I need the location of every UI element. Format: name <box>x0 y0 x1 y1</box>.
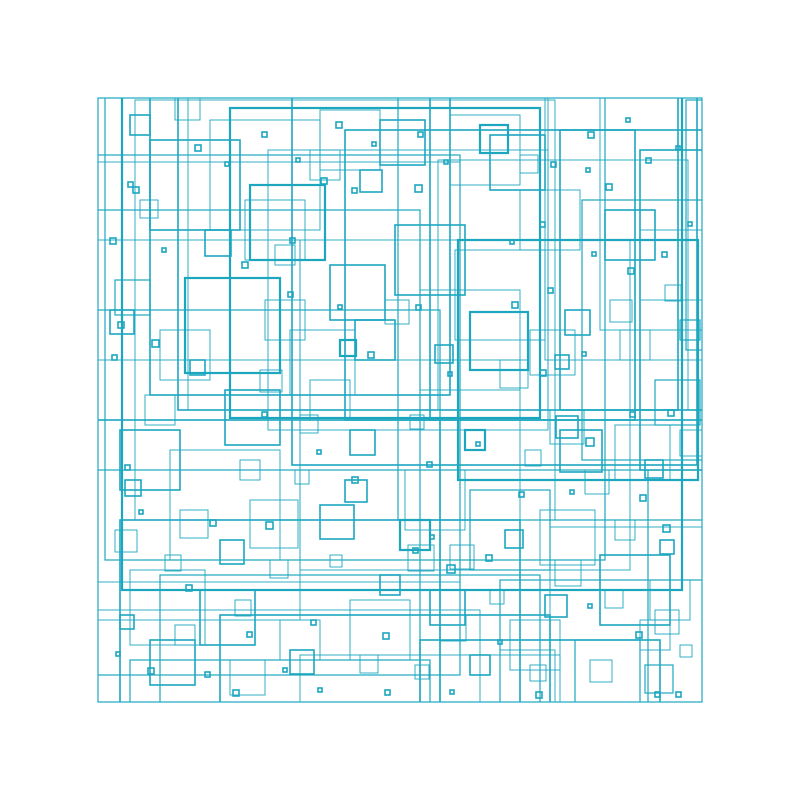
art-square <box>262 132 267 137</box>
art-square <box>450 690 454 694</box>
art-square <box>615 520 635 540</box>
art-square <box>130 115 150 135</box>
art-square <box>338 305 342 309</box>
art-square <box>110 238 116 244</box>
art-square <box>311 620 316 625</box>
art-square <box>686 100 800 350</box>
art-square <box>295 470 309 484</box>
art-square <box>400 520 430 550</box>
art-square <box>350 600 410 660</box>
art-square <box>640 150 800 470</box>
art-square <box>490 135 545 190</box>
art-square <box>360 170 382 192</box>
art-square <box>112 355 117 360</box>
art-square <box>540 222 545 227</box>
art-square <box>519 492 524 497</box>
art-square <box>510 240 514 244</box>
art-square <box>242 262 248 268</box>
art-square <box>500 650 555 705</box>
art-square <box>139 510 143 514</box>
art-square <box>490 590 504 604</box>
art-square <box>175 625 195 645</box>
art-square <box>588 604 592 608</box>
art-square <box>530 665 546 681</box>
art-square <box>626 118 630 122</box>
art-square <box>383 633 389 639</box>
art-square <box>668 410 674 416</box>
art-square <box>350 430 375 455</box>
art-square <box>465 430 485 450</box>
art-square <box>570 490 574 494</box>
art-square <box>415 185 422 192</box>
art-square <box>195 145 201 151</box>
art-square <box>560 130 800 410</box>
art-square <box>645 665 673 693</box>
art-square <box>235 600 251 616</box>
art-square <box>582 352 586 356</box>
art-square <box>60 360 520 800</box>
art-square <box>655 610 679 634</box>
art-square <box>265 300 305 340</box>
art-square <box>225 162 229 166</box>
art-square <box>152 340 159 347</box>
art-square <box>262 412 267 417</box>
art-square <box>575 640 640 705</box>
art-square <box>320 110 380 170</box>
art-square <box>130 660 430 800</box>
art-square <box>536 692 542 698</box>
art-square <box>438 160 688 410</box>
art-square <box>662 252 667 257</box>
art-square <box>368 352 374 358</box>
art-square <box>646 158 651 163</box>
art-square <box>610 300 632 322</box>
art-square <box>290 650 314 674</box>
art-square <box>178 0 678 410</box>
art-square <box>250 500 298 548</box>
art-square <box>310 380 350 420</box>
art-square <box>592 252 596 256</box>
art-square <box>165 555 181 571</box>
art-square <box>636 632 642 638</box>
art-square <box>321 178 327 184</box>
art-square <box>525 450 541 466</box>
art-square <box>352 188 357 193</box>
art-square <box>266 522 273 529</box>
art-square <box>330 555 342 567</box>
art-square <box>586 438 594 446</box>
art-square <box>372 142 376 146</box>
art-square <box>330 265 385 320</box>
art-square <box>540 510 595 565</box>
art-square <box>688 222 692 226</box>
art-square <box>360 655 378 673</box>
art-square <box>185 278 280 373</box>
art-square <box>551 162 556 167</box>
art-square <box>150 140 240 230</box>
art-square <box>133 187 139 193</box>
art-square <box>380 575 400 595</box>
art-square <box>416 305 421 310</box>
art-square <box>283 668 287 672</box>
art-square <box>296 158 300 162</box>
squares-layer <box>0 0 800 800</box>
art-square <box>320 505 354 539</box>
art-square <box>548 288 553 293</box>
art-square <box>415 665 429 679</box>
art-square <box>380 120 425 165</box>
art-square <box>565 310 590 335</box>
generative-art-page <box>0 0 800 800</box>
art-square <box>140 200 158 218</box>
art-square <box>162 248 166 252</box>
art-square <box>555 560 581 586</box>
art-square <box>125 480 141 496</box>
art-square <box>180 510 208 538</box>
art-square <box>550 527 800 800</box>
art-square <box>130 570 205 645</box>
art-square <box>336 122 342 128</box>
art-square <box>555 355 569 369</box>
art-square <box>545 60 800 360</box>
art-square <box>170 450 280 560</box>
art-square <box>385 690 390 695</box>
art-square <box>512 302 518 308</box>
art-square <box>340 340 356 356</box>
art-square <box>640 495 646 501</box>
art-square <box>128 182 133 187</box>
art-square <box>430 535 434 539</box>
art-square <box>318 688 322 692</box>
art-square <box>355 320 395 360</box>
art-square <box>116 652 120 656</box>
art-square <box>660 540 674 554</box>
art-square <box>628 268 634 274</box>
art-square <box>630 412 635 417</box>
art-square <box>150 640 195 685</box>
art-square <box>520 155 538 173</box>
art-square <box>250 185 325 260</box>
art-square <box>510 620 560 670</box>
art-square <box>125 465 130 470</box>
art-square <box>615 425 670 480</box>
art-square <box>292 60 697 465</box>
art-square <box>680 645 692 657</box>
art-square <box>317 450 321 454</box>
art-square <box>655 692 660 697</box>
art-square <box>247 632 252 637</box>
art-square <box>476 442 480 446</box>
art-square <box>470 312 528 370</box>
art-square <box>120 430 180 490</box>
art-square <box>120 615 134 629</box>
art-square <box>676 692 681 697</box>
art-square <box>210 520 216 526</box>
art-square <box>663 525 670 532</box>
art-square <box>455 250 545 340</box>
art-square <box>605 590 623 608</box>
generative-art-canvas <box>0 0 800 800</box>
art-square <box>500 360 528 388</box>
art-square <box>590 660 612 682</box>
art-square <box>148 668 154 674</box>
art-square <box>288 292 293 297</box>
art-square <box>60 610 480 800</box>
art-square <box>606 184 612 190</box>
art-square <box>545 595 567 617</box>
art-square <box>588 132 594 138</box>
art-square <box>418 132 423 137</box>
art-square <box>205 230 231 256</box>
art-square <box>586 168 590 172</box>
art-square <box>440 615 466 641</box>
art-square <box>115 530 137 552</box>
